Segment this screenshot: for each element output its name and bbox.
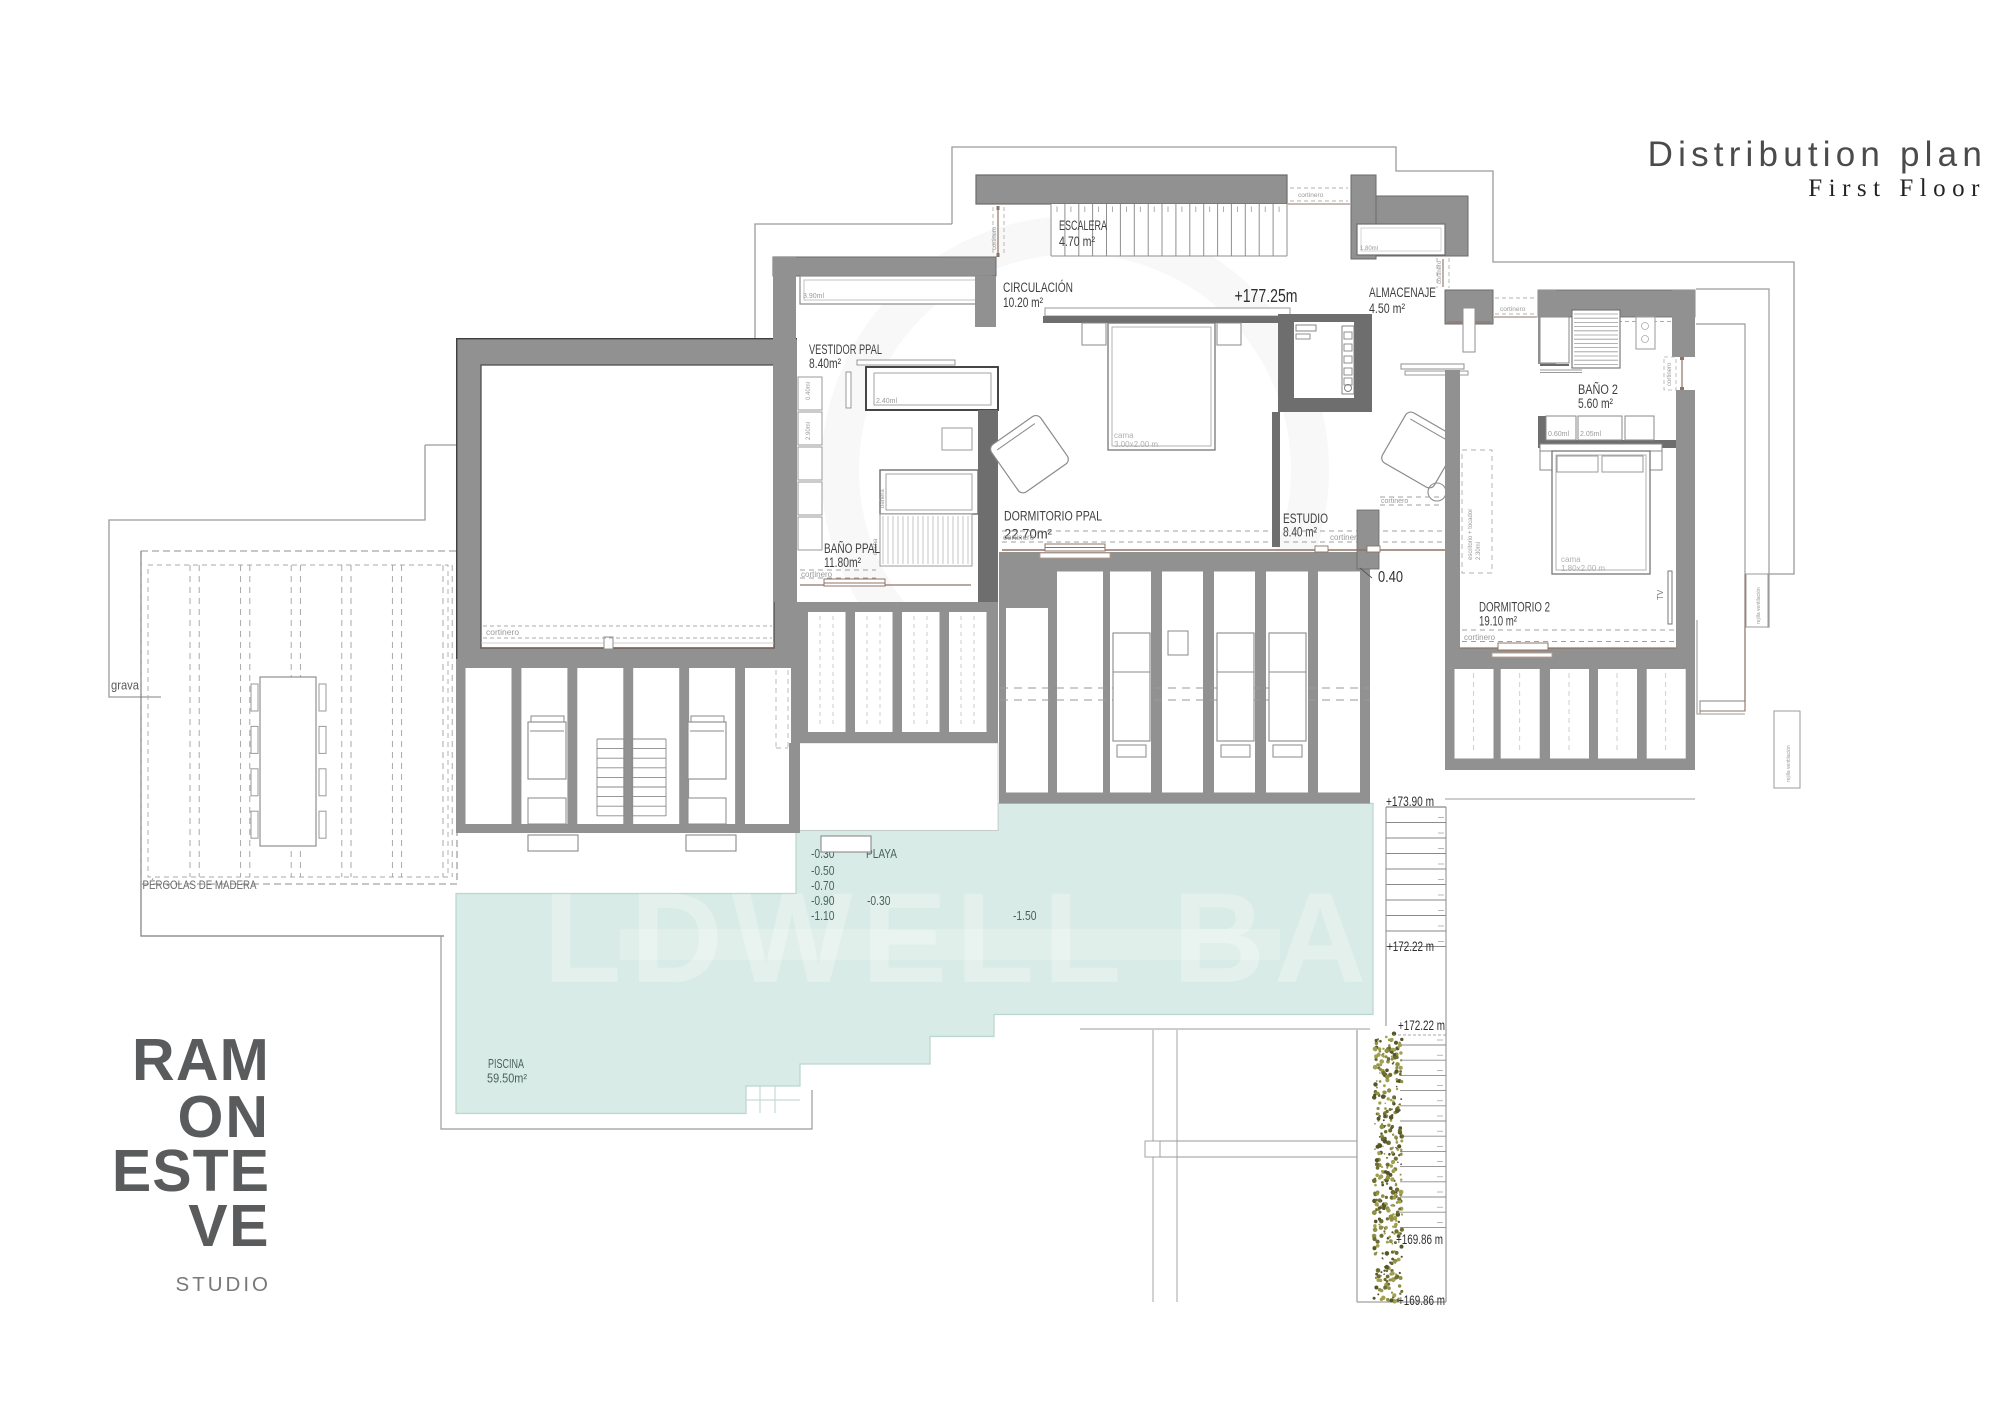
svg-text:BAÑO PPAL: BAÑO PPAL	[824, 541, 880, 556]
svg-text:0.40: 0.40	[1378, 569, 1403, 586]
svg-text:5.60 m²: 5.60 m²	[1578, 396, 1613, 411]
svg-text:BAÑO 2: BAÑO 2	[1578, 382, 1618, 397]
svg-text:cortinero: cortinero	[1003, 533, 1035, 542]
svg-text:-0.70: -0.70	[811, 879, 835, 893]
svg-text:8.40 m²: 8.40 m²	[1283, 524, 1317, 539]
svg-text:ALMACENAJE: ALMACENAJE	[1369, 285, 1436, 300]
svg-text:SOL: SOL	[955, 1025, 1185, 1137]
svg-text:VESTIDOR PPAL: VESTIDOR PPAL	[809, 342, 882, 357]
svg-text:2.30ml: 2.30ml	[1476, 542, 1482, 560]
svg-text:2.90ml: 2.90ml	[806, 422, 812, 440]
svg-text:2.05ml: 2.05ml	[1580, 431, 1601, 438]
svg-text:cortinero: cortinero	[1500, 306, 1526, 313]
svg-text:-1.50: -1.50	[1013, 909, 1037, 923]
svg-text:4.70 m²: 4.70 m²	[1059, 234, 1095, 249]
svg-text:-0.30: -0.30	[867, 894, 891, 908]
svg-text:19.10 m²: 19.10 m²	[1479, 614, 1517, 629]
svg-text:cortinero: cortinero	[1667, 362, 1673, 386]
svg-text:+172.22 m: +172.22 m	[1398, 1018, 1445, 1033]
svg-text:cortinero: cortinero	[992, 226, 998, 250]
svg-text:-0.90: -0.90	[811, 894, 835, 908]
svg-text:PÉRGOLAS DE MADERA: PÉRGOLAS DE MADERA	[143, 877, 257, 892]
svg-text:VE: VE	[188, 1193, 270, 1259]
svg-text:escritorio + tocador: escritorio + tocador	[1468, 509, 1474, 560]
svg-text:+169.86 m: +169.86 m	[1396, 1232, 1443, 1247]
svg-text:cama: cama	[1114, 431, 1134, 440]
svg-text:TV: TV	[1656, 589, 1665, 600]
svg-text:0.40ml: 0.40ml	[806, 382, 812, 400]
svg-text:3.00x2.00 m: 3.00x2.00 m	[1114, 440, 1158, 449]
svg-text:1.80x2.00 m: 1.80x2.00 m	[1561, 564, 1605, 573]
svg-text:rejilla ventilación: rejilla ventilación	[1756, 587, 1762, 624]
svg-text:-0.50: -0.50	[811, 864, 835, 878]
svg-text:STUDIO: STUDIO	[176, 1273, 271, 1296]
svg-text:+172.22 m: +172.22 m	[1387, 939, 1434, 954]
svg-text:8.40m²: 8.40m²	[809, 356, 841, 371]
svg-text:3.90ml: 3.90ml	[803, 293, 824, 300]
svg-text:CIRCULACIÓN: CIRCULACIÓN	[1003, 280, 1073, 295]
svg-text:grava: grava	[111, 679, 139, 693]
svg-text:+177.25m: +177.25m	[1235, 285, 1298, 306]
svg-text:First Floor: First Floor	[1808, 175, 1986, 202]
svg-text:ESCALERA: ESCALERA	[1059, 218, 1107, 233]
svg-text:0.60ml: 0.60ml	[1548, 431, 1569, 438]
svg-text:4.50 m²: 4.50 m²	[1369, 301, 1405, 316]
svg-text:59.50m²: 59.50m²	[487, 1072, 527, 1086]
svg-text:cortinero: cortinero	[1381, 498, 1408, 505]
svg-text:cortinero: cortinero	[1464, 633, 1496, 642]
svg-text:Distribution plan: Distribution plan	[1648, 135, 1987, 174]
svg-text:rejilla ventilación: rejilla ventilación	[1786, 745, 1792, 782]
svg-text:cama: cama	[1561, 555, 1581, 564]
svg-text:DORMITORIO PPAL: DORMITORIO PPAL	[1004, 509, 1102, 524]
svg-text:cortinero: cortinero	[486, 627, 519, 637]
svg-text:-1.10: -1.10	[811, 909, 835, 923]
svg-text:cortinero: cortinero	[1298, 192, 1324, 199]
svg-text:DORMITORIO 2: DORMITORIO 2	[1479, 600, 1550, 615]
svg-text:PISCINA: PISCINA	[488, 1057, 524, 1071]
svg-text:2.40ml: 2.40ml	[876, 398, 897, 405]
svg-text:cortinero: cortinero	[1437, 260, 1443, 284]
svg-text:bañera: bañera	[880, 489, 886, 508]
svg-text:cortinero: cortinero	[801, 570, 833, 579]
svg-text:+169.86 m: +169.86 m	[1398, 1293, 1445, 1308]
svg-text:11.80m²: 11.80m²	[824, 555, 861, 570]
svg-text:10.20 m²: 10.20 m²	[1003, 295, 1043, 310]
svg-text:1.80ml: 1.80ml	[1360, 246, 1378, 252]
